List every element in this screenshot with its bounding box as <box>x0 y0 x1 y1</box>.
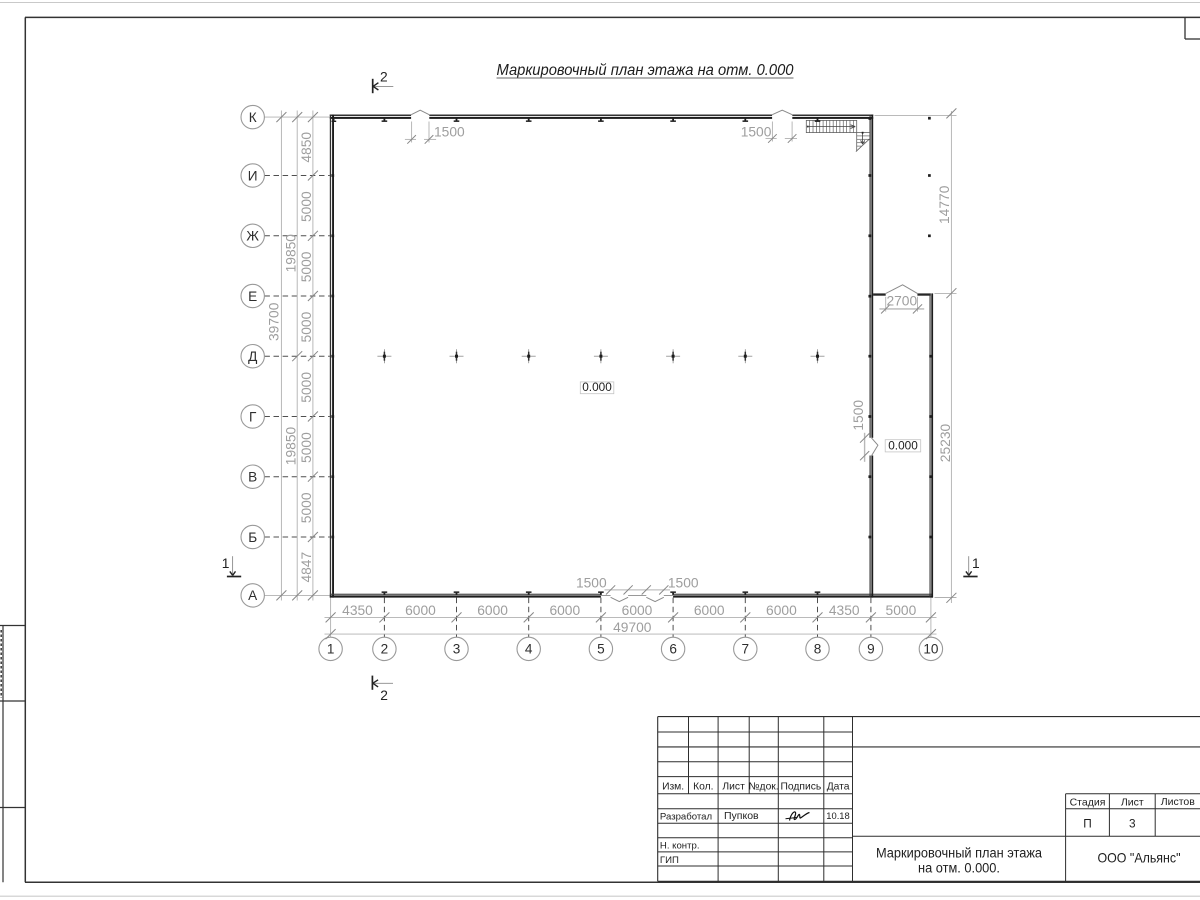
svg-text:К: К <box>249 110 257 125</box>
svg-text:3: 3 <box>1129 816 1136 830</box>
svg-text:А: А <box>248 588 258 603</box>
svg-text:5000: 5000 <box>299 191 314 222</box>
svg-text:Дата: Дата <box>827 781 850 792</box>
svg-text:4847: 4847 <box>299 552 314 583</box>
svg-text:5000: 5000 <box>299 432 314 463</box>
svg-text:5000: 5000 <box>886 603 917 618</box>
svg-text:1500: 1500 <box>434 124 465 139</box>
svg-text:Листов: Листов <box>1161 796 1196 808</box>
svg-text:Маркировочный план этажа на от: Маркировочный план этажа на отм. 0.000 <box>497 62 794 79</box>
svg-text:5000: 5000 <box>299 251 314 282</box>
svg-text:6000: 6000 <box>694 603 725 618</box>
svg-text:49700: 49700 <box>613 620 652 635</box>
svg-text:Е: Е <box>248 289 257 304</box>
svg-text:19850: 19850 <box>283 234 298 273</box>
svg-text:2: 2 <box>380 688 388 703</box>
svg-text:25230: 25230 <box>938 423 953 462</box>
svg-text:Б: Б <box>248 530 257 545</box>
svg-text:П: П <box>1083 816 1091 830</box>
svg-text:19850: 19850 <box>283 426 298 465</box>
svg-text:Подпись: Подпись <box>781 781 822 792</box>
svg-text:Изм.: Изм. <box>662 781 684 792</box>
svg-text:1: 1 <box>972 556 980 571</box>
svg-text:2: 2 <box>380 69 388 84</box>
svg-text:В: В <box>248 470 257 485</box>
svg-text:2700: 2700 <box>886 294 917 309</box>
svg-text:И: И <box>248 168 258 183</box>
svg-text:Разработал: Разработал <box>660 812 712 823</box>
svg-text:14770: 14770 <box>937 185 952 224</box>
svg-text:4350: 4350 <box>829 603 860 618</box>
svg-text:0.000: 0.000 <box>582 380 612 394</box>
svg-text:ООО "Альянс": ООО "Альянс" <box>1098 851 1181 866</box>
svg-text:Н. контр.: Н. контр. <box>660 841 700 852</box>
svg-text:3: 3 <box>453 642 461 657</box>
svg-text:39700: 39700 <box>267 302 282 341</box>
svg-text:1500: 1500 <box>668 575 699 590</box>
svg-text:10.18: 10.18 <box>826 810 849 821</box>
svg-text:Стадия: Стадия <box>1070 797 1106 809</box>
svg-text:5: 5 <box>597 642 605 657</box>
svg-text:№док.: №док. <box>749 781 779 792</box>
svg-text:Маркировочный план этажа: Маркировочный план этажа <box>876 846 1043 861</box>
svg-text:ГИП: ГИП <box>660 855 679 866</box>
svg-text:4: 4 <box>525 642 533 657</box>
svg-text:6: 6 <box>669 642 677 657</box>
svg-text:10: 10 <box>923 642 939 657</box>
svg-text:1500: 1500 <box>741 124 772 139</box>
svg-text:1500: 1500 <box>576 575 607 590</box>
svg-text:6000: 6000 <box>766 603 797 618</box>
svg-text:6000: 6000 <box>622 603 653 618</box>
svg-text:6000: 6000 <box>549 603 580 618</box>
svg-text:1: 1 <box>222 556 230 571</box>
svg-text:4350: 4350 <box>342 603 373 618</box>
svg-text:5000: 5000 <box>299 492 314 523</box>
svg-text:Кол.: Кол. <box>693 781 713 792</box>
svg-text:2: 2 <box>381 642 389 657</box>
svg-text:Г: Г <box>249 409 257 424</box>
svg-text:на отм. 0.000.: на отм. 0.000. <box>918 861 1000 876</box>
svg-text:Лист: Лист <box>1121 797 1144 809</box>
svg-text:Пупков: Пупков <box>724 810 759 822</box>
svg-text:5000: 5000 <box>299 372 314 403</box>
svg-text:0.000: 0.000 <box>888 438 918 452</box>
svg-text:6000: 6000 <box>405 603 436 618</box>
svg-text:Д: Д <box>248 349 257 364</box>
svg-text:Ж: Ж <box>246 229 259 244</box>
svg-text:6000: 6000 <box>477 603 508 618</box>
svg-text:4850: 4850 <box>299 132 314 163</box>
svg-text:9: 9 <box>867 642 875 657</box>
svg-text:Лист: Лист <box>722 781 745 792</box>
svg-text:1: 1 <box>327 642 335 657</box>
svg-text:7: 7 <box>742 642 750 657</box>
svg-text:1500: 1500 <box>851 400 866 431</box>
svg-text:5000: 5000 <box>299 311 314 342</box>
svg-text:8: 8 <box>814 642 822 657</box>
